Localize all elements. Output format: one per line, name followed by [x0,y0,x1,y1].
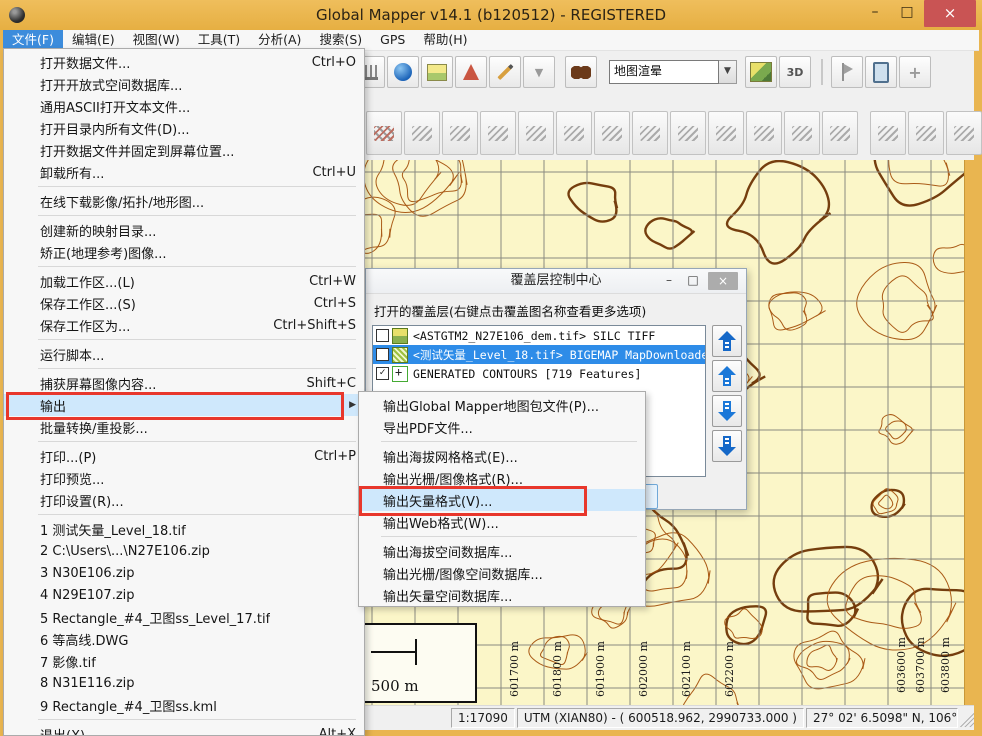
search-button[interactable] [565,56,597,88]
menu-separator [38,441,356,442]
menubar-item[interactable]: 搜索(S) [310,30,371,50]
svg-text:601800 m: 601800 m [551,641,564,697]
digitizer-tool-icon [716,126,736,141]
menu-item-label: 创建新的映射目录... [40,221,156,240]
menu-item[interactable]: 批量转换/重投影... [4,416,364,438]
move-top-icon [717,330,737,352]
menu-item-label: 批量转换/重投影... [40,418,148,437]
digitizer-tool-button[interactable] [870,111,906,155]
menu-item-label: 打开数据文件并固定到屏幕位置... [40,141,234,160]
menu-item[interactable]: 输出光栅/图像空间数据库... [359,562,645,584]
menu-item[interactable]: 打开目录内所有文件(D)... [4,117,364,139]
scale-bar-box: 500 m [360,623,477,703]
menu-item-label: 通用ASCII打开文本文件... [40,97,190,116]
digitizer-tool-icon [488,126,508,141]
menu-item[interactable]: 输出海拔网格格式(E)... [359,445,645,467]
menu-item-label: 打开数据文件... [40,53,130,72]
digitizer-tool-icon [954,126,974,141]
menu-item[interactable]: 6 等高线.DWG [4,628,364,650]
digitizer-tool-icon [564,126,584,141]
menu-item[interactable]: 3 N30E106.zip [4,562,364,584]
digitizer-tool-button[interactable] [442,111,478,155]
3d-view-button[interactable]: 3D [779,56,811,88]
open-image-button[interactable] [421,56,453,88]
move-up-button[interactable] [712,360,742,392]
move-top-button[interactable] [712,325,742,357]
menu-item-label: 输出矢量格式(V)... [383,491,492,510]
menu-item-label: 输出光栅/图像格式(R)... [383,469,523,488]
flag-icon [840,63,854,81]
menu-item-label: 打开目录内所有文件(D)... [40,119,190,138]
digitizer-tool-button[interactable] [404,111,440,155]
menu-item-label: 捕获屏幕图像内容... [40,374,156,393]
menu-item[interactable]: 卸载所有...Ctrl+U [4,161,364,183]
layer-name: <ASTGTM2_N27E106_dem.tif> SILC TIFF [413,329,655,343]
menu-item-label: 打开开放式空间数据库... [40,75,182,94]
menu-item[interactable]: 8 N31E116.zip [4,672,364,694]
maximize-button[interactable]: □ [892,0,922,26]
path-profile-icon: + [908,63,921,82]
digitizer-tool-icon [602,126,622,141]
path-profile-button[interactable]: + [899,56,931,88]
menu-item-label: 1 测试矢量_Level_18.tif [40,520,186,539]
pan-zoom-button[interactable] [387,56,419,88]
shader-options-button[interactable] [745,56,777,88]
menu-item-label: 输出Web格式(W)... [383,513,499,532]
digitizer-tool-icon [678,126,698,141]
menu-item[interactable]: 运行脚本... [4,343,364,365]
raster-layer-icon [392,328,408,344]
menu-item[interactable]: 退出(X)Alt+X [4,723,364,736]
title-bar: Global Mapper v14.1 (b120512) - REGISTER… [0,0,982,30]
menu-item-shortcut: Alt+X [303,727,356,736]
menu-item[interactable]: 4 N29E107.zip [4,584,364,606]
digitizer-tool-icon [792,126,812,141]
digitizer-tool-icon [754,126,774,141]
menu-separator [38,215,356,216]
menu-item[interactable]: 创建新的映射目录... [4,219,364,241]
menu-item-label: 打印预览... [40,469,104,488]
terrain-shader-icon [750,62,772,82]
move-down-icon [717,400,737,422]
menu-item-label: 输出Global Mapper地图包文件(P)... [383,396,599,415]
dialog-instruction: 打开的覆盖层(右键点击覆盖图名称查看更多选项) [374,301,646,320]
flag-tool-button[interactable] [831,56,863,88]
digitizer-tool-button[interactable] [946,111,982,155]
digitizer-tool-icon [640,126,660,141]
menu-item[interactable]: 5 Rectangle_#4_卫图ss_Level_17.tif [4,606,364,628]
digitizer-tool-button[interactable] [784,111,820,155]
digitizer-tool-button[interactable] [670,111,706,155]
close-button[interactable]: × [924,0,976,27]
digitizer-tool-button[interactable] [908,111,944,155]
menu-item-label: 卸载所有... [40,163,104,182]
digitizer-tool-button[interactable] [632,111,668,155]
menu-item-label: 输出 [40,396,66,415]
svg-text:601900 m: 601900 m [594,641,607,697]
menu-item-label: 2 C:\Users\...\N27E106.zip [40,544,210,559]
menu-item-label: 输出光栅/图像空间数据库... [383,564,543,583]
view-3d-path-button[interactable] [455,56,487,88]
menu-item-label: 在线下载影像/拓扑/地形图... [40,192,204,211]
menu-separator [38,514,356,515]
window-title: Global Mapper v14.1 (b120512) - REGISTER… [0,0,982,30]
dialog-minimize-button[interactable]: – [658,272,680,290]
menu-item[interactable]: 2 C:\Users\...\N27E106.zip [4,540,364,562]
status-projection: UTM (XIAN80) - ( 600518.962, 2990733.000… [517,708,804,728]
layer-checkbox[interactable] [376,348,389,361]
menu-item[interactable]: 打开开放式空间数据库... [4,73,364,95]
toolbar-separator [821,59,823,85]
shader-dropdown-arrow-icon[interactable]: ▼ [719,60,737,84]
digitizer-tool-icon [830,126,850,141]
menu-item[interactable]: 保存工作区...(S)Ctrl+S [4,292,364,314]
menu-item-label: 导出PDF文件... [383,418,473,437]
menu-item-shortcut: Ctrl+U [296,165,356,180]
digitizer-tool-icon [878,126,898,141]
move-up-icon [717,365,737,387]
menu-item[interactable]: 打开数据文件并固定到屏幕位置... [4,139,364,161]
svg-text:601700 m: 601700 m [508,641,521,697]
menu-item-label: 加载工作区...(L) [40,272,135,291]
menu-separator [38,719,356,720]
menu-item-label: 9 Rectangle_#4_卫图ss.kml [40,696,217,715]
menu-item-label: 输出矢量空间数据库... [383,586,512,605]
pencil-icon [497,64,513,80]
move-bottom-button[interactable] [712,430,742,462]
menu-item[interactable]: 通用ASCII打开文本文件... [4,95,364,117]
menubar-item[interactable]: GPS [371,30,414,50]
menu-item[interactable]: 打印...(P)Ctrl+P [4,445,364,467]
contours-layer-icon [392,366,408,382]
scale-bar-line [371,651,417,653]
menu-item-label: 保存工作区...(S) [40,294,136,313]
menu-item-label: 7 影像.tif [40,652,96,671]
menu-item[interactable]: 输出矢量格式(V)... [359,489,645,511]
menu-item[interactable]: 7 影像.tif [4,650,364,672]
minimize-button[interactable]: – [860,0,890,26]
menu-item-label: 保存工作区为... [40,316,130,335]
menu-item-label: 8 N31E116.zip [40,676,135,691]
move-down-button[interactable] [712,395,742,427]
svg-text:603600 m: 603600 m [895,637,908,693]
svg-text:602000 m: 602000 m [637,641,650,697]
menu-item[interactable]: 打印预览... [4,467,364,489]
menu-item-shortcut: Ctrl+Shift+S [257,318,356,333]
menubar-item[interactable]: 视图(W) [124,30,189,50]
resize-grip[interactable] [960,709,974,727]
layer-name: <测试矢量_Level_18.tif> BIGEMAP MapDownloade… [413,347,706,363]
digitizer-tool-icon [412,126,432,141]
menu-item[interactable]: 导出PDF文件... [359,416,645,438]
status-position: 27° 02' 6.5098" N, 106° [806,708,958,728]
menu-item-label: 矫正(地理参考)图像... [40,243,167,262]
svg-text:602200 m: 602200 m [723,641,736,697]
menu-item[interactable]: 加载工作区...(L)Ctrl+W [4,270,364,292]
menu-separator [38,339,356,340]
menu-separator [381,536,637,537]
digitizer-tool-button[interactable] [480,111,516,155]
digitizer-tool-button[interactable] [556,111,592,155]
globe-cursor-icon [394,63,412,81]
digitizer-tool-button[interactable] [822,111,858,155]
binoculars-icon [571,66,591,79]
menu-item[interactable]: 输出▶ [4,394,364,416]
scale-bar-tick [415,639,417,665]
shader-dropdown[interactable]: 地图渲晕 [609,60,719,84]
digitizer-button[interactable] [489,56,521,88]
menu-item-shortcut: Ctrl+P [298,449,356,464]
gps-button[interactable] [865,56,897,88]
move-bottom-icon [717,435,737,457]
layer-row[interactable]: ✓GENERATED CONTOURS [719 Features] [373,364,705,383]
scale-bar-label: 500 m [371,677,419,695]
menu-item-shortcut: Ctrl+S [298,296,356,311]
digitizer-tool-button[interactable] [366,111,402,155]
menu-item[interactable]: 打开数据文件...Ctrl+O [4,51,364,73]
dialog-close-button[interactable]: × [708,272,738,290]
menu-item[interactable]: 矫正(地理参考)图像... [4,241,364,263]
menu-item[interactable]: 9 Rectangle_#4_卫图ss.kml [4,694,364,716]
layer-name: GENERATED CONTOURS [719 Features] [413,367,641,381]
global-mapper-window: { "window": { "title": "Global Mapper v1… [0,0,982,736]
menubar-item[interactable]: 工具(T) [189,30,249,50]
menu-item-label: 输出海拔空间数据库... [383,542,512,561]
menu-item-label: 输出海拔网格格式(E)... [383,447,518,466]
menu-item-shortcut: Ctrl+O [296,55,356,70]
3d-view-icon: 3D [787,66,804,79]
digitizer-tool-icon [916,126,936,141]
digitizer-tool-button[interactable] [746,111,782,155]
digitizer-tool-icon [374,126,394,141]
menu-item-shortcut: Ctrl+W [293,274,356,289]
menu-item-label: 打印设置(R)... [40,491,124,510]
menu-item-label: 5 Rectangle_#4_卫图ss_Level_17.tif [40,608,270,627]
submenu-arrow-icon: ▶ [349,400,356,410]
layer-row[interactable]: <ASTGTM2_N27E106_dem.tif> SILC TIFF [373,326,705,345]
menu-item-label: 打印...(P) [40,447,96,466]
menu-item-label: 退出(X) [40,725,85,736]
menu-item[interactable]: 输出Global Mapper地图包文件(P)... [359,394,645,416]
status-scale: 1:17090 [451,708,515,728]
svg-text:602100 m: 602100 m [680,641,693,697]
layer-row[interactable]: <测试矢量_Level_18.tif> BIGEMAP MapDownloade… [373,345,705,364]
menubar-item[interactable]: 文件(F) [3,30,63,50]
more-tools-button[interactable]: ▼ [523,56,555,88]
svg-text:603700 m: 603700 m [914,637,927,693]
menu-item-shortcut: Shift+C [290,376,356,391]
antenna-icon [463,64,479,80]
svg-text:603800 m: 603800 m [939,637,952,693]
menu-item[interactable]: 输出海拔空间数据库... [359,540,645,562]
digitizer-tool-button[interactable] [594,111,630,155]
menu-item[interactable]: 在线下载影像/拓扑/地形图... [4,190,364,212]
menu-item[interactable]: 输出Web格式(W)... [359,511,645,533]
menubar-item[interactable]: 编辑(E) [63,30,124,50]
menu-separator [381,441,637,442]
menu-item[interactable]: 输出矢量空间数据库... [359,584,645,606]
digitizer-tool-icon [526,126,546,141]
menu-item[interactable]: 1 测试矢量_Level_18.tif [4,518,364,540]
menu-item[interactable]: 打印设置(R)... [4,489,364,511]
gps-device-icon [873,62,889,83]
map-tile-layer-icon [392,347,408,363]
menu-item[interactable]: 捕获屏幕图像内容...Shift+C [4,372,364,394]
layer-checkbox[interactable] [376,329,389,342]
menu-item-label: 4 N29E107.zip [40,588,135,603]
menu-item-label: 3 N30E106.zip [40,566,135,581]
menubar-item[interactable]: 分析(A) [249,30,310,50]
menu-separator [38,266,356,267]
map-right-border [964,160,974,705]
export-submenu: 输出Global Mapper地图包文件(P)...导出PDF文件...输出海拔… [358,391,646,607]
menu-separator [38,368,356,369]
menu-item-label: 运行脚本... [40,345,104,364]
menu-separator [38,186,356,187]
menu-item-label: 6 等高线.DWG [40,630,128,649]
digitizer-tool-button[interactable] [708,111,744,155]
menu-item[interactable]: 保存工作区为...Ctrl+Shift+S [4,314,364,336]
menubar-item[interactable]: 帮助(H) [414,30,476,50]
menu-item[interactable]: 输出光栅/图像格式(R)... [359,467,645,489]
file-menu: 打开数据文件...Ctrl+O打开开放式空间数据库...通用ASCII打开文本文… [3,48,365,736]
digitizer-tool-button[interactable] [518,111,554,155]
dropdown-arrow-icon: ▼ [535,66,543,79]
terrain-image-icon [427,64,447,81]
digitizer-tool-icon [450,126,470,141]
layer-checkbox[interactable]: ✓ [376,367,389,380]
dialog-maximize-button[interactable]: □ [682,272,704,290]
